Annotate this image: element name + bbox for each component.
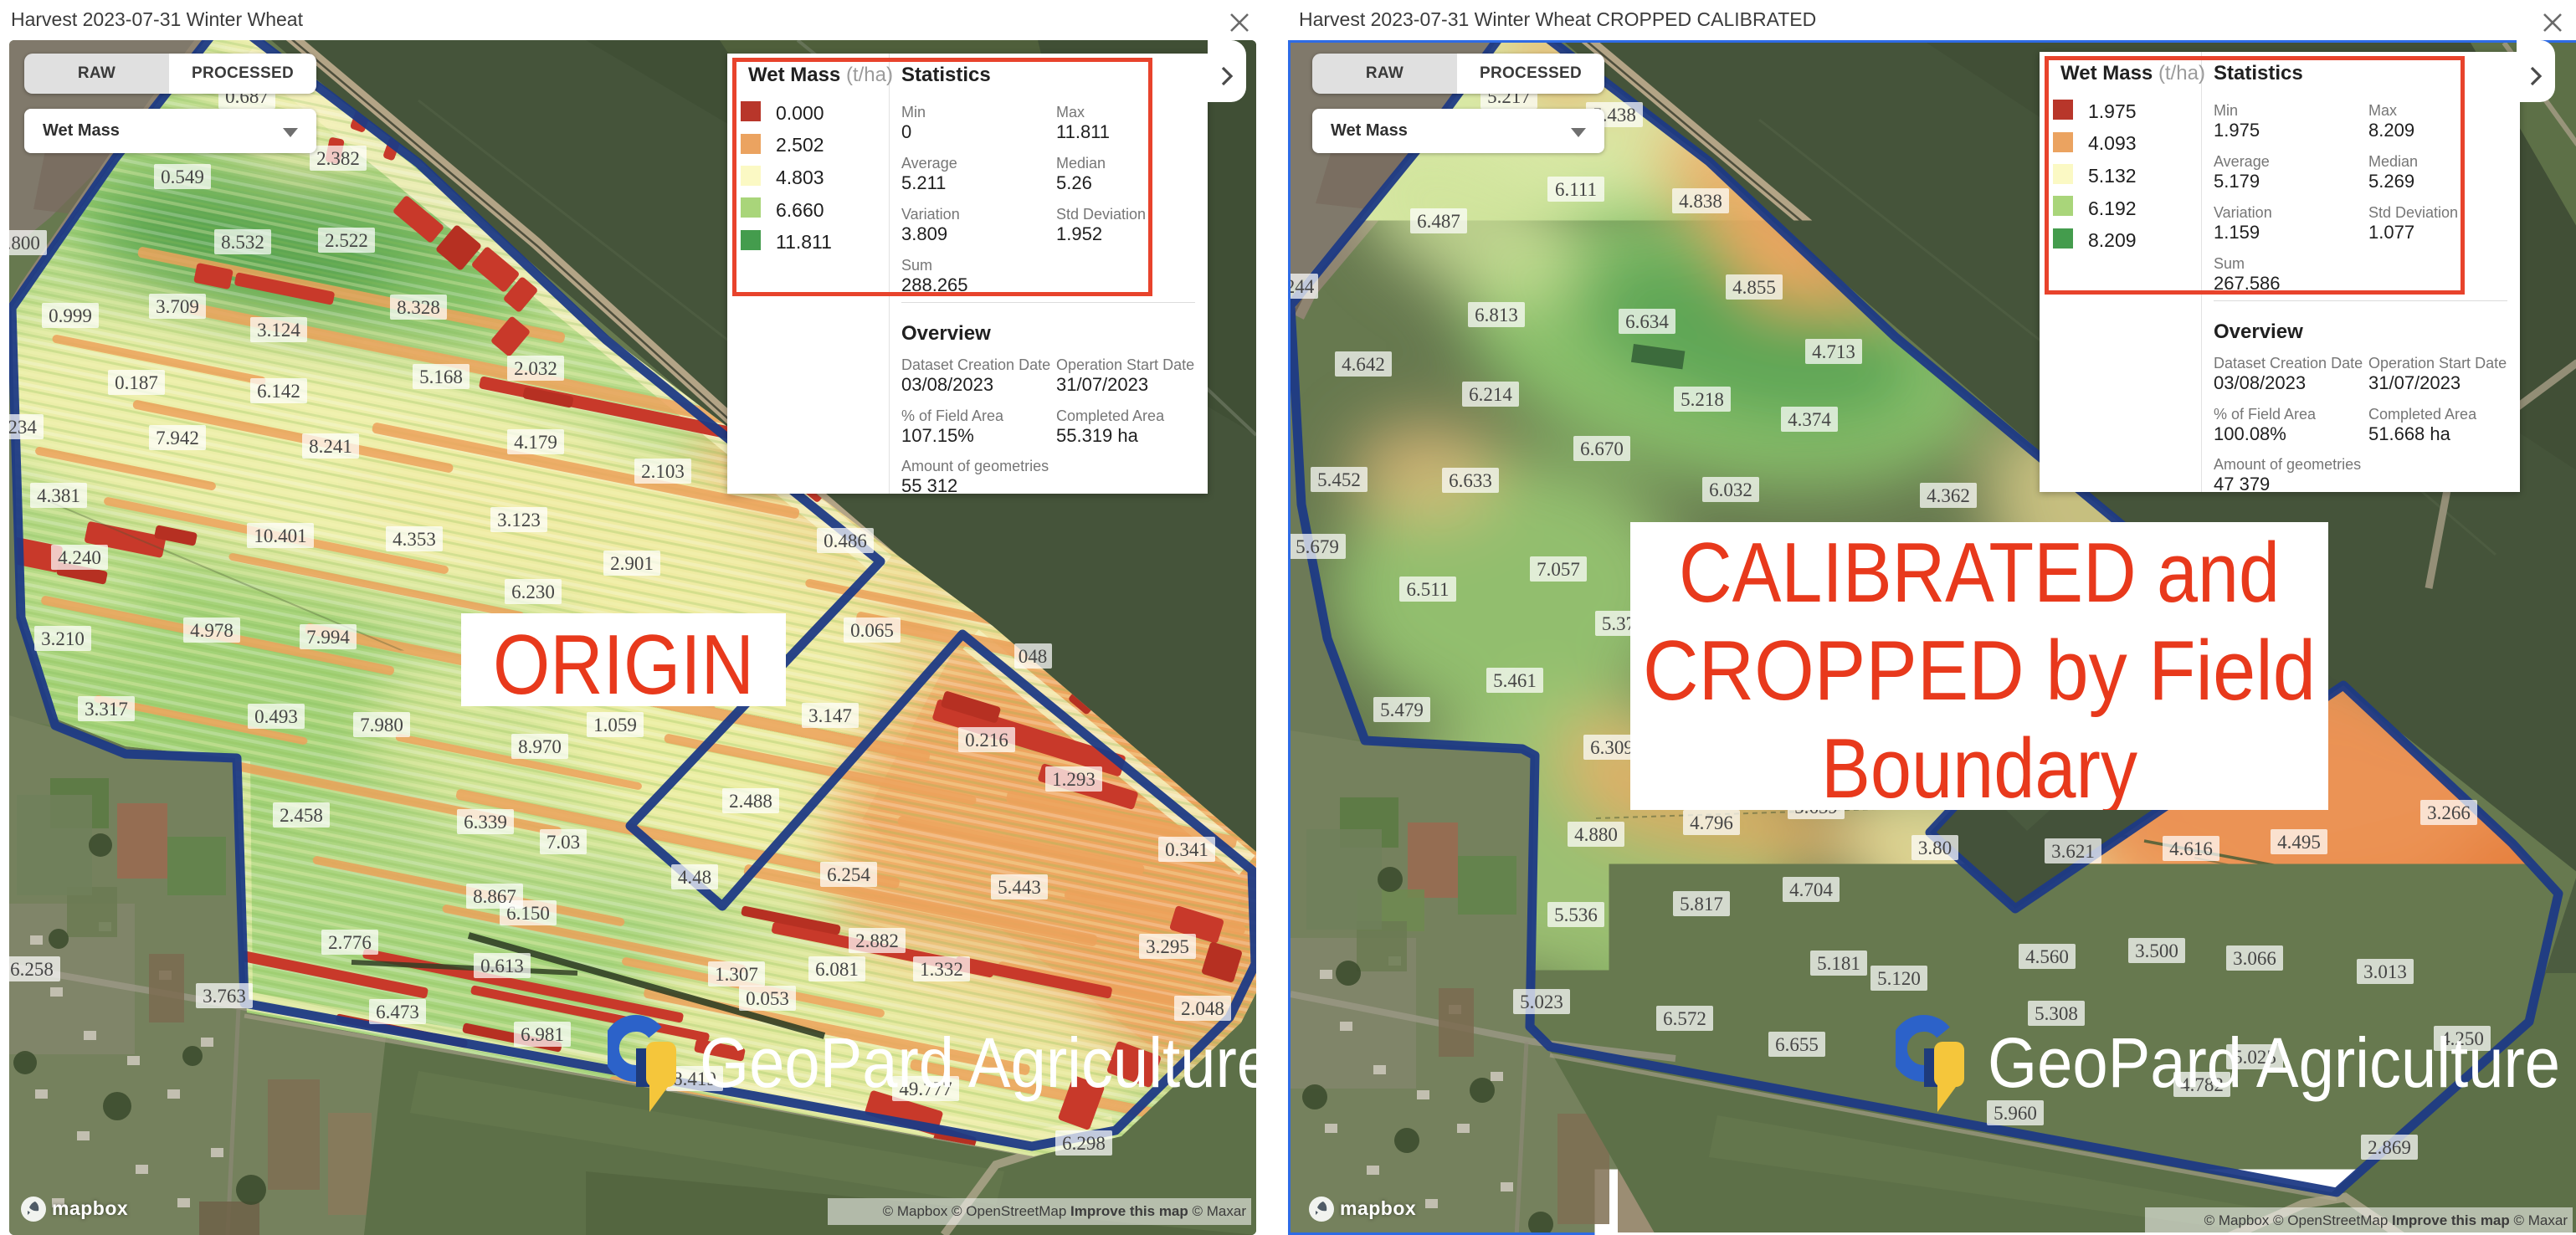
svg-text:0.065: 0.065	[850, 620, 894, 641]
svg-text:4.495: 4.495	[2277, 832, 2321, 853]
svg-text:2.103: 2.103	[641, 461, 685, 482]
svg-text:8.328: 8.328	[397, 297, 440, 318]
svg-text:6.487: 6.487	[1417, 211, 1460, 232]
svg-text:0.216: 0.216	[965, 730, 1008, 751]
svg-text:6.032: 6.032	[1709, 479, 1752, 500]
svg-text:8.970: 8.970	[518, 736, 562, 757]
svg-text:6.214: 6.214	[1469, 384, 1512, 405]
svg-text:5.120: 5.120	[1877, 968, 1921, 989]
svg-text:5.168: 5.168	[419, 366, 463, 387]
svg-text:3.763: 3.763	[203, 986, 246, 1007]
svg-text:1.332: 1.332	[920, 959, 963, 980]
svg-text:2.882: 2.882	[855, 930, 899, 951]
svg-text:7.03: 7.03	[547, 832, 580, 853]
svg-text:Boundary: Boundary	[1821, 722, 2137, 810]
svg-text:2.488: 2.488	[729, 791, 772, 812]
svg-text:1.307: 1.307	[715, 964, 758, 985]
svg-text:4.713: 4.713	[1812, 341, 1855, 362]
svg-text:6.309: 6.309	[1590, 737, 1634, 758]
svg-text:4.560: 4.560	[2025, 946, 2069, 967]
svg-text:2.458: 2.458	[280, 805, 323, 826]
svg-text:3.709: 3.709	[156, 296, 199, 317]
svg-text:3.066: 3.066	[2233, 948, 2276, 969]
svg-text:0.187: 0.187	[115, 372, 158, 393]
svg-text:2.869: 2.869	[2368, 1137, 2411, 1158]
svg-text:0.341: 0.341	[1165, 839, 1208, 860]
svg-text:6.339: 6.339	[464, 812, 507, 833]
svg-text:5.461: 5.461	[1493, 670, 1537, 691]
svg-text:7.994: 7.994	[306, 627, 350, 648]
svg-text:0.999: 0.999	[49, 305, 92, 326]
svg-text:5.023: 5.023	[1520, 992, 1563, 1012]
svg-text:3.317: 3.317	[85, 699, 128, 720]
svg-text:3.295: 3.295	[1146, 936, 1189, 957]
svg-text:8.867: 8.867	[473, 886, 516, 907]
svg-text:6.981: 6.981	[521, 1024, 564, 1045]
svg-text:GeoPard Agriculture: GeoPard Agriculture	[1988, 1023, 2560, 1102]
svg-text:4.374: 4.374	[1788, 409, 1831, 430]
svg-text:0.493: 0.493	[254, 706, 298, 727]
svg-text:10.401: 10.401	[254, 525, 306, 546]
svg-text:6.655: 6.655	[1775, 1034, 1819, 1055]
svg-text:5.218: 5.218	[1681, 389, 1724, 410]
svg-text:6.234: 6.234	[9, 417, 37, 438]
svg-text:2.522: 2.522	[325, 230, 368, 251]
svg-text:GeoPard Agriculture: GeoPard Agriculture	[700, 1023, 1272, 1102]
svg-text:7.942: 7.942	[156, 428, 199, 448]
svg-text:5.452: 5.452	[1317, 469, 1361, 490]
svg-text:4.855: 4.855	[1732, 277, 1776, 298]
svg-text:6.670: 6.670	[1580, 438, 1624, 459]
svg-text:244: 244	[1288, 276, 1315, 297]
svg-text:3.266: 3.266	[2427, 802, 2471, 823]
svg-text:5.181: 5.181	[1817, 953, 1860, 974]
svg-text:CALIBRATED and: CALIBRATED and	[1679, 526, 2280, 620]
svg-text:3.124: 3.124	[257, 320, 300, 341]
svg-text:3.621: 3.621	[2051, 841, 2095, 862]
svg-text:6.511: 6.511	[1407, 579, 1450, 600]
svg-text:3.147: 3.147	[808, 705, 852, 726]
svg-text:6.230: 6.230	[511, 582, 555, 602]
svg-text:4.796: 4.796	[1690, 812, 1733, 833]
svg-text:3.80: 3.80	[1918, 838, 1952, 858]
svg-text:CROPPED by Field: CROPPED by Field	[1643, 624, 2316, 718]
svg-text:0.053: 0.053	[746, 988, 789, 1009]
svg-text:4.48: 4.48	[678, 867, 711, 888]
svg-text:5.817: 5.817	[1680, 894, 1723, 915]
svg-text:4.704: 4.704	[1789, 879, 1833, 900]
svg-text:2.901: 2.901	[610, 553, 654, 574]
svg-text:3.013: 3.013	[2363, 961, 2407, 982]
svg-text:8.241: 8.241	[309, 436, 352, 457]
svg-text:4.179: 4.179	[514, 432, 557, 453]
svg-text:6.813: 6.813	[1475, 305, 1518, 325]
svg-text:6.572: 6.572	[1663, 1008, 1706, 1029]
svg-text:4.353: 4.353	[393, 529, 436, 550]
svg-text:2.032: 2.032	[514, 358, 557, 379]
svg-text:6.254: 6.254	[827, 864, 870, 885]
svg-text:6.258: 6.258	[10, 959, 54, 980]
svg-text:048: 048	[1019, 646, 1048, 667]
svg-text:4.362: 4.362	[1927, 485, 1970, 506]
svg-text:6.634: 6.634	[1625, 311, 1669, 332]
svg-text:8.800: 8.800	[9, 233, 40, 254]
svg-text:8.532: 8.532	[221, 232, 264, 253]
svg-text:4.381: 4.381	[37, 485, 80, 506]
svg-text:0.486: 0.486	[824, 530, 867, 551]
svg-text:5.479: 5.479	[1380, 699, 1424, 720]
svg-text:5.443: 5.443	[998, 877, 1041, 898]
svg-text:6.111: 6.111	[1555, 179, 1597, 200]
svg-text:1.059: 1.059	[593, 715, 637, 735]
svg-text:4.240: 4.240	[58, 547, 101, 568]
svg-text:2.776: 2.776	[328, 932, 372, 953]
svg-text:5.536: 5.536	[1554, 904, 1598, 925]
svg-text:1.293: 1.293	[1052, 769, 1096, 790]
svg-text:3.210: 3.210	[41, 628, 85, 649]
svg-text:6.633: 6.633	[1449, 470, 1492, 491]
svg-text:2.382: 2.382	[316, 148, 360, 169]
svg-text:6.142: 6.142	[257, 381, 300, 402]
svg-text:5.679: 5.679	[1296, 536, 1339, 557]
svg-text:4.838: 4.838	[1679, 191, 1722, 212]
svg-text:4.880: 4.880	[1574, 824, 1618, 845]
svg-text:0.613: 0.613	[480, 956, 524, 976]
svg-text:4.642: 4.642	[1342, 354, 1385, 375]
svg-text:0.549: 0.549	[161, 167, 204, 187]
svg-text:3.123: 3.123	[497, 510, 541, 530]
svg-text:7.980: 7.980	[360, 715, 403, 735]
svg-text:6.298: 6.298	[1062, 1133, 1106, 1154]
svg-text:3.500: 3.500	[2135, 940, 2178, 961]
svg-text:7.057: 7.057	[1537, 559, 1580, 580]
svg-text:4.616: 4.616	[2169, 838, 2213, 859]
svg-text:6.473: 6.473	[376, 1002, 419, 1022]
svg-text:6.081: 6.081	[815, 959, 859, 980]
svg-text:ORIGIN: ORIGIN	[493, 618, 754, 706]
svg-text:4.978: 4.978	[190, 620, 233, 641]
